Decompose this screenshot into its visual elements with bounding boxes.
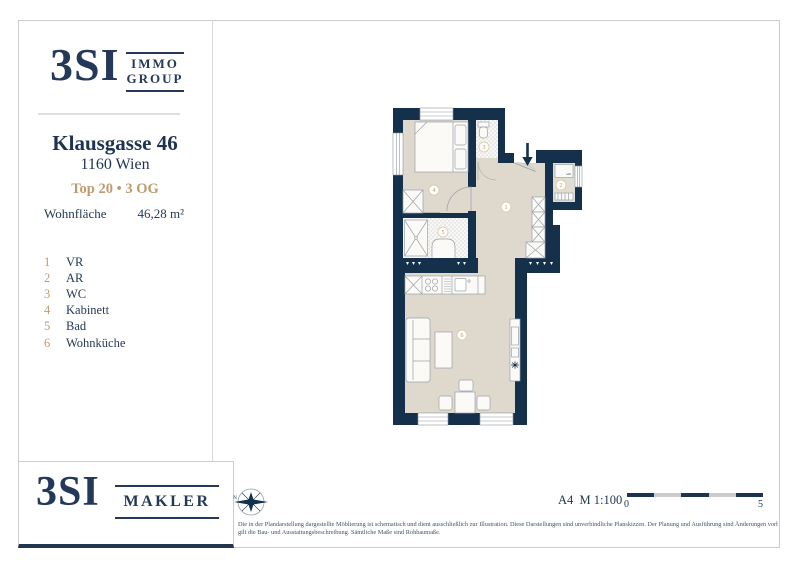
room-legend: 1VR 2AR 3WC 4Kabinett 5Bad 6Wohnküche [44, 254, 125, 351]
legend-row: 3WC [44, 286, 125, 302]
coffee-table [435, 332, 452, 368]
chair [439, 396, 452, 410]
brand-group: GROUP [126, 72, 184, 87]
plant [511, 361, 519, 368]
legend-row: 5Bad [44, 319, 125, 335]
legend-num: 2 [44, 271, 66, 286]
legend-num: 5 [44, 319, 66, 334]
bathtub [432, 239, 455, 258]
footer-brand-makler: MAKLER [115, 485, 219, 519]
room-marker-1: 1 [505, 205, 508, 211]
room-marker-6: 6 [461, 333, 464, 339]
brand-logo-immo-group: IMMO GROUP [126, 52, 184, 92]
footer-logo-box: 3SI MAKLER [18, 461, 234, 548]
address-street: Klausgasse 46 [18, 131, 212, 156]
brand-immo: IMMO [126, 57, 184, 72]
format-scale-label: A4 M 1:100 [558, 493, 622, 508]
kitchen-sink [455, 279, 466, 292]
area-value: 46,28 m² [137, 206, 184, 222]
wc-cistern [478, 122, 489, 127]
legend-row: 2AR [44, 270, 125, 286]
disclaimer-line-1: Die in der Plandarstellung dargestellte … [238, 521, 778, 529]
legend-label: VR [66, 255, 83, 270]
legend-num: 4 [44, 303, 66, 318]
washer-label: wm [566, 172, 571, 176]
legend-label: Wohnküche [66, 336, 125, 351]
room-marker-4: 4 [433, 188, 436, 194]
footer-brand-3si: 3SI [36, 468, 100, 516]
area-label: Wohnfläche [44, 206, 106, 222]
floor-plan: wm 1 2 3 [375, 95, 600, 440]
address-city: 1160 Wien [18, 156, 212, 174]
legend-num: 1 [44, 255, 66, 270]
scale-start-label: 0 [624, 499, 629, 510]
sidebar-divider [212, 20, 213, 461]
legend-row: 6Wohnküche [44, 335, 125, 351]
legend-label: WC [66, 287, 86, 302]
room-marker-5: 5 [442, 230, 445, 236]
chair [477, 396, 490, 410]
living-area-row: Wohnfläche 46,28 m² [44, 206, 184, 222]
wc-toilet [480, 127, 488, 138]
legend-row: 4Kabinett [44, 303, 125, 319]
legend-num: 3 [44, 287, 66, 302]
compass-north-label: N [233, 496, 237, 501]
compass-icon: N [231, 482, 271, 522]
room-marker-3: 3 [483, 145, 486, 151]
legend-label: AR [66, 271, 83, 286]
room-marker-2: 2 [560, 183, 563, 189]
scale-end-label: 5 [758, 499, 763, 510]
sofa [406, 318, 430, 382]
scale-bar [627, 493, 763, 497]
disclaimer-text: Die in der Plandarstellung dargestellte … [238, 521, 778, 537]
unit-floor-line: Top 20 • 3 OG [18, 181, 212, 198]
legend-num: 6 [44, 336, 66, 351]
brand-logo-3si: 3SI [50, 38, 119, 91]
disclaimer-line-2: gilt die Bau- und Ausstattungsbeschreibu… [238, 529, 778, 537]
legend-label: Kabinett [66, 303, 109, 318]
logo-divider [38, 113, 180, 115]
legend-row: 1VR [44, 254, 125, 270]
chair [459, 380, 473, 391]
legend-label: Bad [66, 319, 86, 334]
dining-table [455, 392, 475, 413]
